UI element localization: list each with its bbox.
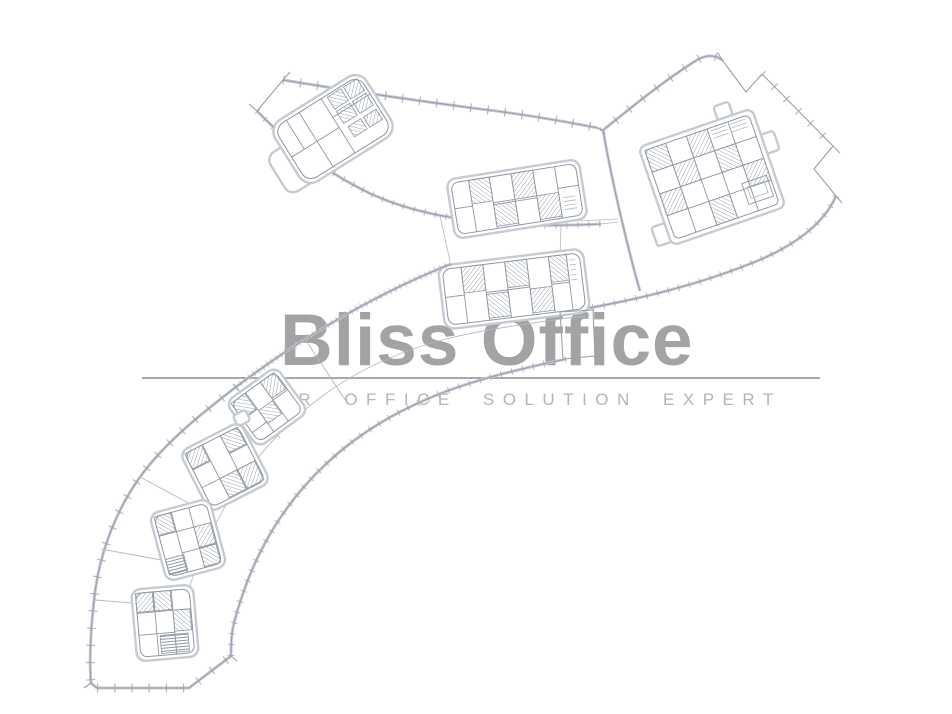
wingB-outer-wall-halo bbox=[602, 56, 723, 131]
core-A2-shaft-cell bbox=[511, 170, 537, 199]
wingB-right-notch-wall bbox=[814, 146, 836, 196]
core-mid-shaft-cell bbox=[548, 254, 569, 282]
core-mid-shaft-cell bbox=[505, 259, 530, 287]
core-C4-shaft-cell bbox=[153, 590, 172, 610]
wing-top-left bbox=[249, 70, 618, 261]
wingC-outer-upper-halo bbox=[236, 264, 451, 387]
core-A2-shaft-cell bbox=[537, 192, 562, 219]
floor-plan-svg bbox=[0, 0, 952, 714]
core-C4-shaft-cell bbox=[173, 609, 192, 631]
core-module-A1 bbox=[253, 70, 398, 198]
wingB-outer-wall bbox=[602, 56, 723, 131]
wingA-left-cap-wall bbox=[257, 80, 283, 111]
wingC-outer-upper-wall bbox=[236, 264, 451, 387]
wingC-corner-tick-marks bbox=[84, 656, 237, 688]
core-module-B bbox=[621, 91, 798, 250]
wing-top-right bbox=[589, 53, 842, 308]
wingB-topright-notch-wall bbox=[723, 61, 762, 92]
core-module-C4 bbox=[131, 584, 199, 661]
wingB-outer-wall-ticks bbox=[602, 56, 723, 131]
floor-plan-page: Bliss Office YOUR OFFICE SOLUTION EXPERT bbox=[0, 0, 952, 714]
core-mid-shaft-cell bbox=[530, 286, 555, 313]
core-mid-shaft-cell bbox=[486, 292, 511, 319]
junction-middle bbox=[438, 248, 595, 359]
wingC-bottom-wall bbox=[91, 656, 231, 688]
core-module-middle bbox=[438, 248, 591, 329]
core-C4-stair-run bbox=[160, 633, 189, 653]
core-A2-shaft-cell bbox=[468, 177, 492, 204]
wingC-outer-upper-ticks bbox=[236, 264, 451, 387]
wing-lower-left bbox=[84, 264, 590, 688]
core-mid-shaft-cell bbox=[461, 265, 486, 293]
core-C4-shaft-cell bbox=[135, 592, 154, 612]
core-A2-shaft-cell bbox=[493, 199, 518, 226]
wingB-left-wall-halo bbox=[603, 130, 640, 291]
